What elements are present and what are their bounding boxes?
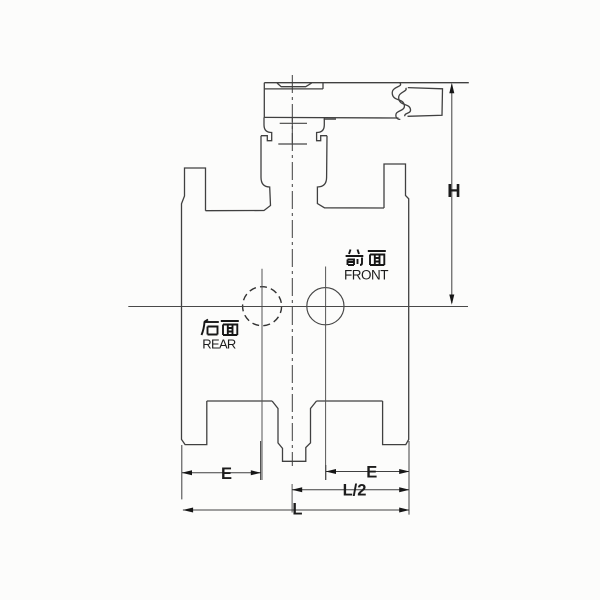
svg-text:H: H bbox=[447, 180, 460, 201]
svg-text:L/2: L/2 bbox=[343, 482, 367, 500]
svg-text:FRONT: FRONT bbox=[344, 268, 388, 283]
svg-text:E: E bbox=[221, 465, 232, 483]
svg-text:L: L bbox=[292, 501, 302, 519]
svg-text:E: E bbox=[366, 463, 377, 481]
svg-text:REAR: REAR bbox=[202, 337, 236, 352]
